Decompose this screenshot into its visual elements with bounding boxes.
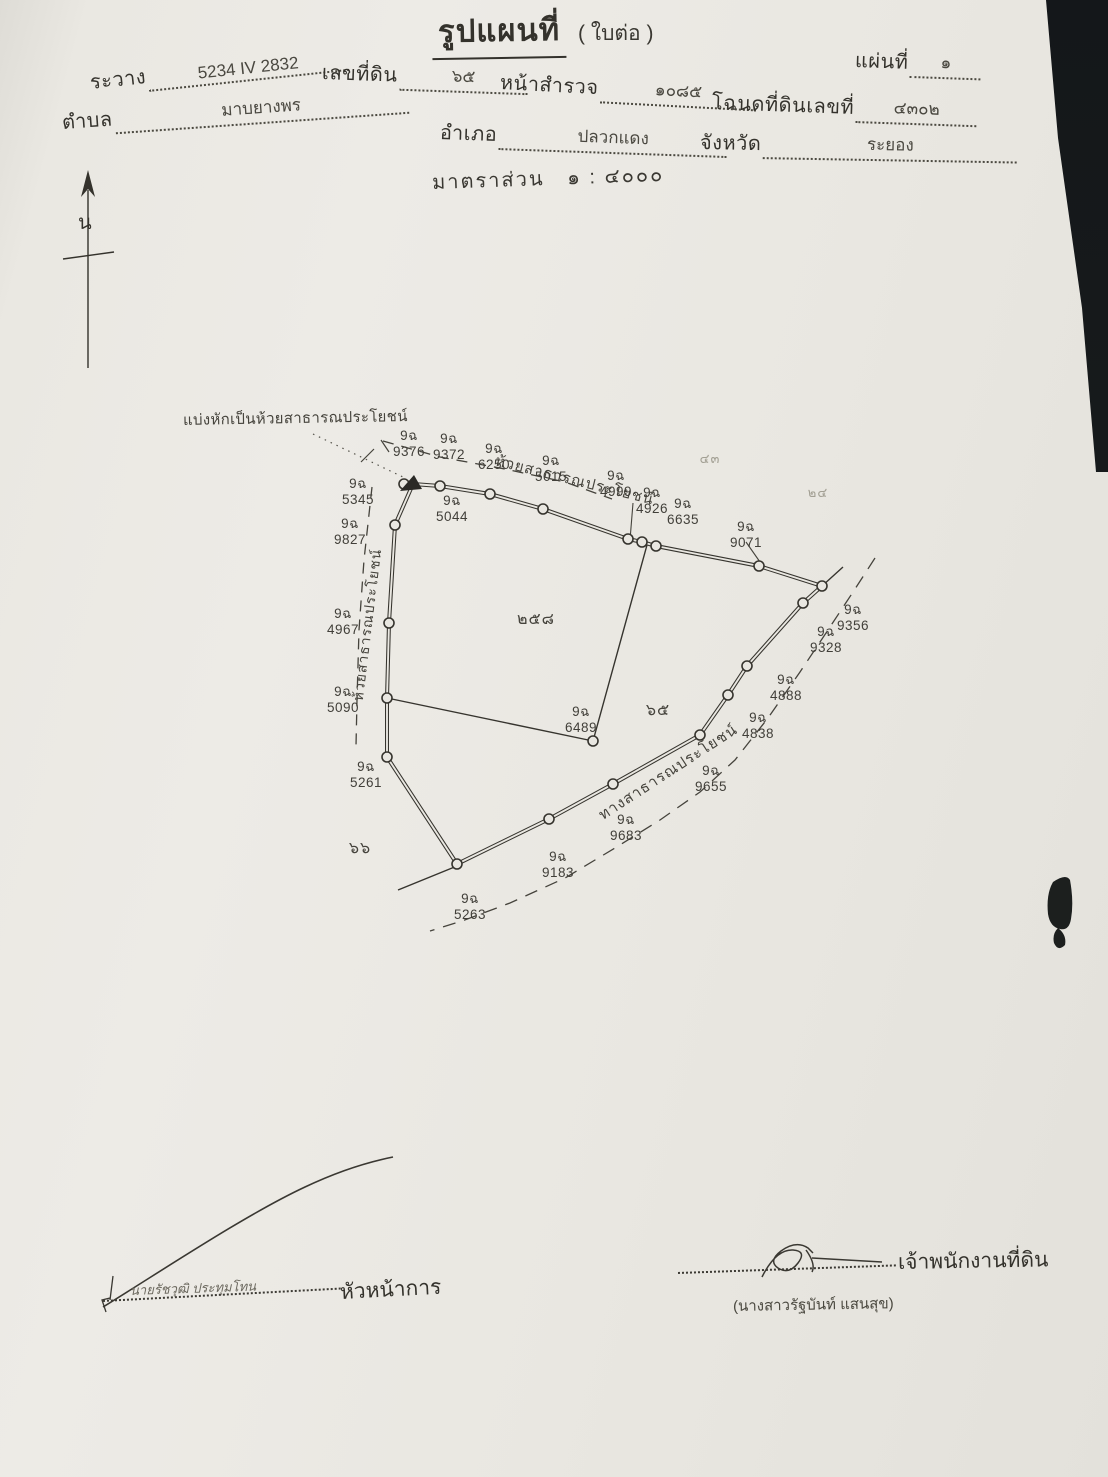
boundary-marker-label: 9ฉ9376 bbox=[393, 428, 425, 459]
boundary-marker-label: 9ฉ5090 bbox=[327, 684, 359, 715]
north-arrow-icon bbox=[63, 170, 114, 368]
subdivision-note: แบ่งหักเป็นห้วยสาธารณประโยชน์ bbox=[183, 404, 408, 432]
parcel-number: ๒๕๘ bbox=[517, 607, 555, 632]
boundary-marker-label: 9ฉ9183 bbox=[542, 849, 574, 880]
boundary-marker-label: 9ฉ5015 bbox=[535, 453, 567, 484]
right-signer-title: เจ้าพนักงานที่ดิน bbox=[898, 1243, 1049, 1279]
subdivision-lines bbox=[387, 545, 647, 741]
parcel-number: ๖๖ bbox=[349, 836, 371, 861]
boundary-marker-label: 9ฉ5261 bbox=[350, 759, 382, 790]
note-leader-line bbox=[313, 434, 405, 478]
boundary-marker-label: 9ฉ9827 bbox=[334, 516, 366, 547]
scanned-land-survey-document: { "page": { "title": "รูปแผนที่", "subti… bbox=[0, 0, 1108, 1477]
right-signer-name: (นางสาวรัฐบันท์ แสนสุข) bbox=[733, 1291, 894, 1318]
boundary-marker-label: 9ฉ9683 bbox=[610, 812, 642, 843]
stream-tick-marks bbox=[361, 440, 389, 462]
boundary-marker-label: 9ฉ4838 bbox=[742, 710, 774, 741]
boundary-marker-label: 9ฉ4926 bbox=[636, 485, 668, 516]
boundary-marker-label: 9ฉ9372 bbox=[433, 431, 465, 462]
boundary-marker-label: 9ฉ5345 bbox=[342, 476, 374, 507]
boundary-marker-label: 9ฉ9328 bbox=[810, 624, 842, 655]
boundary-marker-label: 9ฉ4967 bbox=[327, 606, 359, 637]
right-signature-stroke bbox=[762, 1245, 882, 1277]
boundary-marker-label: 9ฉ6250 bbox=[478, 441, 510, 472]
boundary-marker-label: 9ฉ4999 bbox=[600, 468, 632, 499]
boundary-marker-label: 9ฉ9071 bbox=[730, 519, 762, 550]
ink-blob-artifact bbox=[1048, 877, 1073, 948]
adjacent-parcel-number: ๔๓ bbox=[700, 448, 721, 469]
boundary-marker-label: 9ฉ6489 bbox=[565, 704, 597, 735]
boundary-marker-label: 9ฉ9655 bbox=[695, 763, 727, 794]
boundary-marker-label: 9ฉ6635 bbox=[667, 496, 699, 527]
left-signer-title: หัวหน้าการ bbox=[339, 1271, 442, 1309]
boundary-marker-label: 9ฉ4888 bbox=[770, 672, 802, 703]
left-signature-tick bbox=[102, 1276, 113, 1312]
boundary-marker-label: 9ฉ5263 bbox=[454, 891, 486, 922]
boundary-marker-label: 9ฉ5044 bbox=[436, 493, 468, 524]
adjacent-parcel-number: ๒๔ bbox=[808, 482, 828, 503]
road-dashed-line bbox=[430, 558, 875, 931]
parcel-number: ๖๕ bbox=[646, 698, 670, 723]
